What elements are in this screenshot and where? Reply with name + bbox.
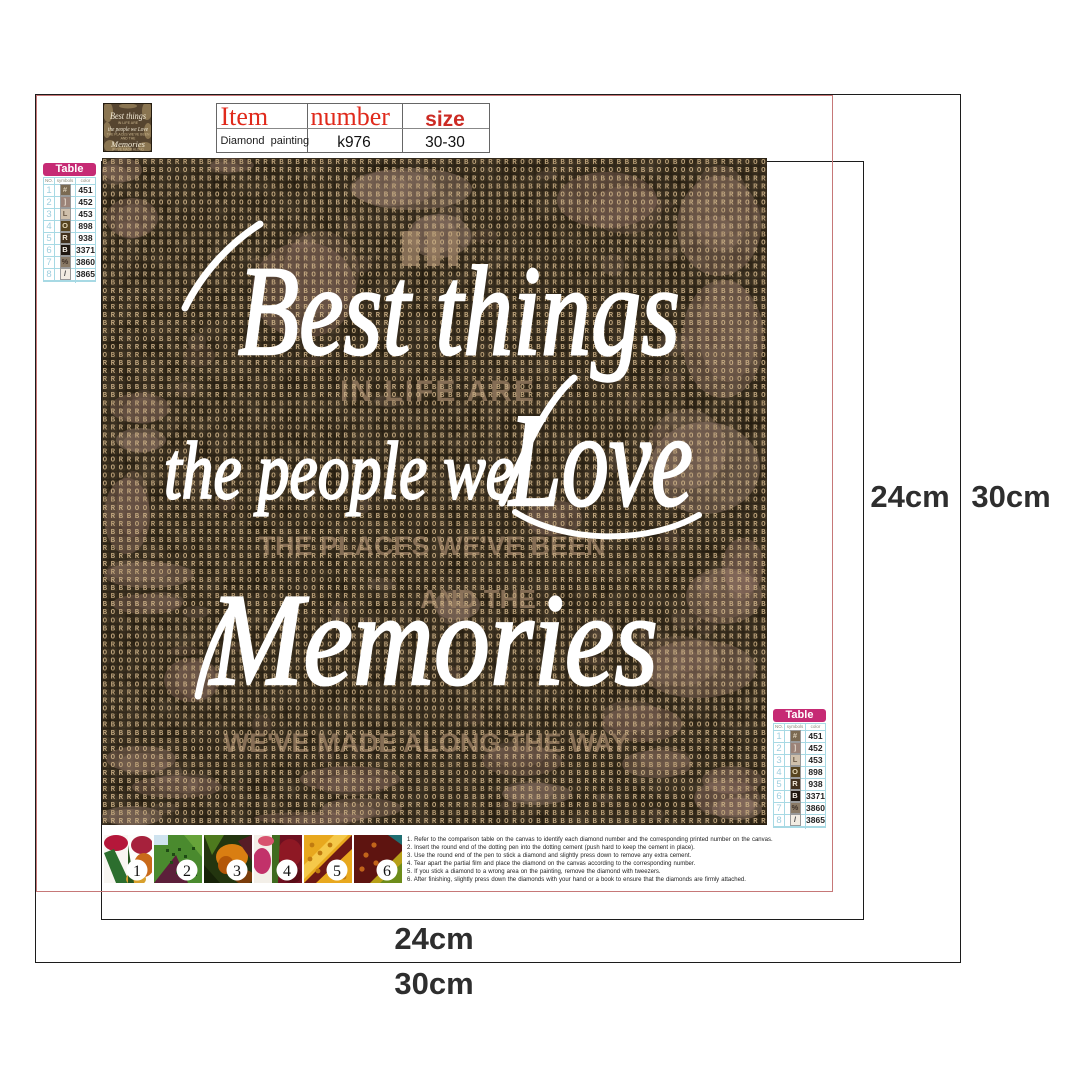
svg-text:Love: Love: [508, 386, 693, 534]
svg-text:RRRRRROOOOOBBBRRRRBBRRRRRRBBBO: RRRRRROOOOOBBBRRRRBBRRRRRRBBBOOORRRRRRRR…: [103, 818, 767, 825]
svg-text:1: 1: [133, 863, 141, 880]
svg-text:RRRRRRRRRRRROOORRRBBBBBBOORRRB: RRRRRRRRRRRROOORRRBBBBBBOORRRBRRRRRRBBBB…: [103, 786, 767, 794]
svg-text:OOOOBBBBBBBBBBBBBBBRRRRRRRRRRR: OOOOBBBBBBBBBBBBBBBRRRRRRRRRRRRRRRBBRRRR…: [103, 762, 767, 770]
svg-text:RROOOOBBBBBOOOORBOOOBBRRRRBBBB: RROOOOBBBBBOOOORBOOOBBRRRRBBBBRRRBOOROOB…: [103, 746, 767, 754]
svg-text:RRRRRRBBBBOROOOORRRRRRROORBBBB: RRRRRRBBBBOROOOORRRRRRROORBBBBBBBBBBRBBB…: [103, 207, 767, 215]
svg-text:RRRRRBOBBBOOOBRRBBBBRRRBOORBBB: RRRRRBOBBBOOOBRRBBBBRRRBOORBBBBBBBRRRRRB…: [103, 770, 767, 778]
svg-text:WE'VE MADE ALONG: WE'VE MADE ALONG: [112, 148, 144, 152]
svg-text:RROBBRBBBBBOOOOOOOOBBBBBBRRBOO: RROBBRBBBBBOOOOOOOOBBBBBBRRBOORRRBBBBBBB…: [103, 738, 767, 746]
svg-text:the people we: the people we: [164, 425, 514, 516]
svg-text:RBBBBRRRRRRRRRRRRRBBBOORRRRBBB: RBBBBRRRRRRRRRRRRRBBBOORRRRBBBBBBBBBBRRR…: [103, 722, 767, 730]
svg-text:3: 3: [233, 863, 241, 880]
svg-text:BRRBBBBBOOORRRRRRRRRRRRRRRRRRR: BRRBBBBBOOORRRRRRRRRRRRRRRRRRRRRRRRRBRRR…: [103, 167, 767, 175]
svg-text:BBRRRBBROOOORBBOBBBBBBRRRRRRRR: BBRRRBBROOOORBBOBBBBBBRRRRRRRRRRRRRRRROR…: [103, 553, 767, 561]
svg-text:ROORRRRRRROOOOOBBBBRRRRRRBBBBB: ROORRRRRRROOOOOBBBBRRRRRRBBBBBBBBBBBBBOB…: [103, 224, 767, 232]
svg-text:RBBBBBBBRROOBBRRRRRRRRRRRBBBBB: RBBBBBBBRROOBBRRRRRRRRRRRBBBBBBRBRRBBORR…: [103, 545, 767, 553]
svg-text:Best things: Best things: [238, 240, 680, 382]
svg-text:RBBBBBBBBBBRROOOOOOOOOOOOBOOOR: RBBBBBBBBBBRROOOOOOOOOOOOBOOORRROBBBBBRR…: [103, 730, 767, 738]
svg-text:OOOOOBOOOOOOOORROOOOOOOOOBBBBB: OOOOOBOOOOOOOORROOOOOOOOOBBBBBRRRRRROBBB…: [103, 199, 767, 207]
svg-text:ROOOOOOBBBRBBRRRRORRRRRRRRRRBB: ROOOOOOBBBRBBRRRRORRRRRRRRRRBBBRRRRRRRRR…: [103, 754, 767, 762]
svg-text:6: 6: [383, 863, 391, 880]
svg-text:BBBBBBBBBBBBRRRRRRBBBBBBBBRRRR: BBBBBBBBBBBBRRRRRRBBBBBBBBRRRRRRRRRBBRRR…: [103, 537, 767, 545]
svg-text:BBBBBBOOBBBRRRRORRRBBBOBBBRRRR: BBBBBBOOBBBRRRRORRRBBBOBBBRRRRROOOOOBBRR…: [103, 802, 767, 810]
svg-text:RRROORRRRROOOROOOOOBRRRRRRRRBB: RRROORRRRROOOROOOOOBRRRRRRRRBBBBBBBBBBBB…: [103, 216, 767, 224]
svg-text:4: 4: [283, 863, 291, 880]
svg-text:BBBRROOBROOOOORRROOBBBRRBBBBRR: BBBRROOBROOOOORRROOBBBRRBBBBRRRROOOOORRR…: [103, 810, 767, 818]
svg-text:Memories: Memories: [208, 566, 658, 713]
svg-text:ORRRORRRRROORRRRRRRROBBOOBBBBR: ORRRORRRRROORRRRRRRROBBOOBBBBRRRRRRRRRRR…: [103, 183, 767, 191]
svg-text:BRRRRRRBBBBBBBBBBBBBRRBOOOOORR: BRRRRRRBBBBBBBBBBBBBRRBOOOOORRRBBBRRRRRR…: [103, 232, 767, 240]
svg-text:Best things: Best things: [110, 111, 146, 121]
svg-text:RRBBBBBBRROOOORRROBRRRBBBBRRRR: RRBBBBBBRROOOORRROBRRRBBBBRRRRRRRRROBRRB…: [103, 778, 767, 786]
svg-text:OORRBBRRRRRROBOOOOOROOROOORBBB: OORRBBRRRRRROBOOOOOROOROOORBBBRRBBBBBBBB…: [103, 191, 767, 199]
svg-text:RRRRRBBBBBOOOOOOOBBBBRRRRRRBBR: RRRRRBBBBBOOOOOOOBBBBRRRRRRBBRRRRRRRRORO…: [103, 794, 767, 802]
svg-text:RBBBBRRROORRRRRRRRROOOBBRBBBBB: RBBBBRRROORRRRRRRRROOOBBRBBBBBBBBBBBBBBB…: [103, 714, 767, 722]
svg-text:RRRBBRRROOOBRBRRRRRRBRRRRRRRRB: RRRBBRRROOOBRBRRRRRRBRRRRRRRRBRRRORRRRRO…: [103, 175, 767, 183]
svg-text:BBBBBRRRRRRRBBBRBBBRRRBBBRRBBR: BBBBBRRRRRRRBBBRBBBRRRBBBRRBBRRRRRRRRRRR…: [103, 159, 767, 167]
svg-text:2: 2: [183, 863, 191, 880]
svg-text:5: 5: [333, 863, 341, 880]
svg-text:IN LIFE ARE: IN LIFE ARE: [118, 121, 139, 125]
